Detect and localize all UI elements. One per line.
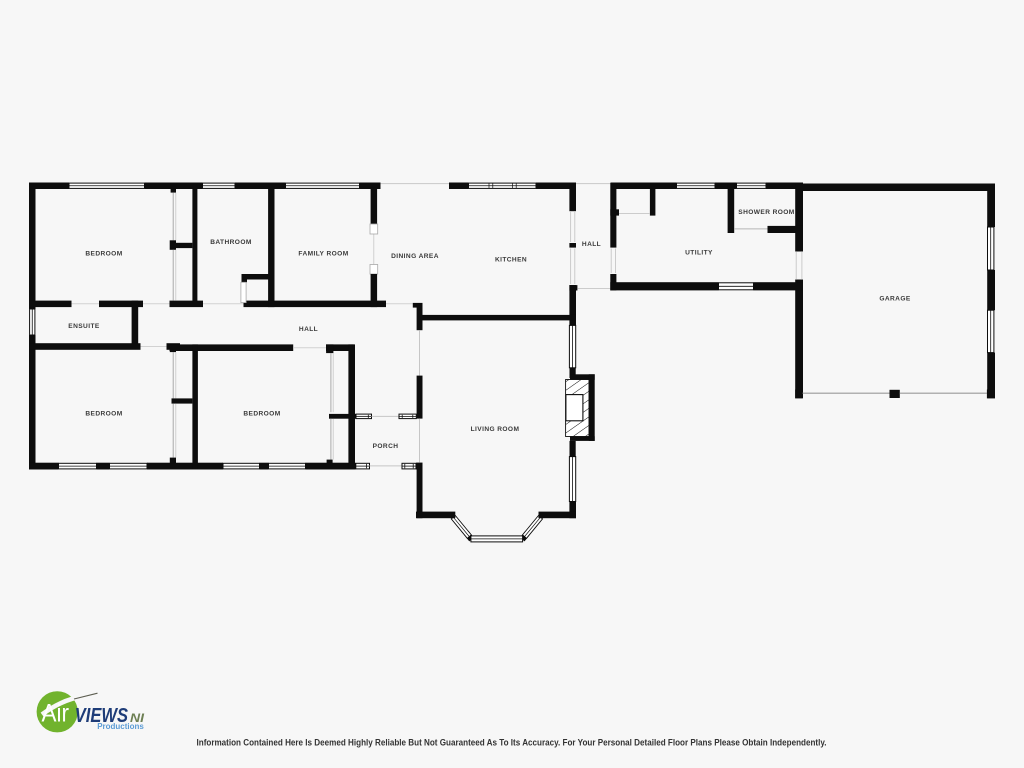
svg-text:GARAGE: GARAGE — [879, 295, 911, 302]
svg-text:UTILITY: UTILITY — [685, 249, 713, 256]
svg-text:ENSUITE: ENSUITE — [68, 323, 100, 330]
svg-text:BEDROOM: BEDROOM — [85, 250, 122, 257]
svg-text:LIVING ROOM: LIVING ROOM — [471, 426, 520, 433]
svg-text:Air: Air — [42, 700, 70, 728]
svg-text:SHOWER ROOM: SHOWER ROOM — [738, 209, 795, 216]
svg-text:BATHROOM: BATHROOM — [210, 239, 252, 246]
svg-text:BEDROOM: BEDROOM — [85, 410, 122, 417]
svg-text:HALL: HALL — [582, 241, 601, 248]
svg-text:Productions: Productions — [97, 721, 144, 731]
svg-text:PORCH: PORCH — [373, 443, 399, 450]
svg-text:DINING AREA: DINING AREA — [391, 253, 439, 260]
svg-text:Information Contained Here Is: Information Contained Here Is Deemed Hig… — [197, 738, 827, 748]
svg-text:HALL: HALL — [299, 326, 318, 333]
svg-text:BEDROOM: BEDROOM — [243, 410, 280, 417]
svg-text:KITCHEN: KITCHEN — [495, 256, 527, 263]
svg-text:FAMILY ROOM: FAMILY ROOM — [298, 250, 348, 257]
